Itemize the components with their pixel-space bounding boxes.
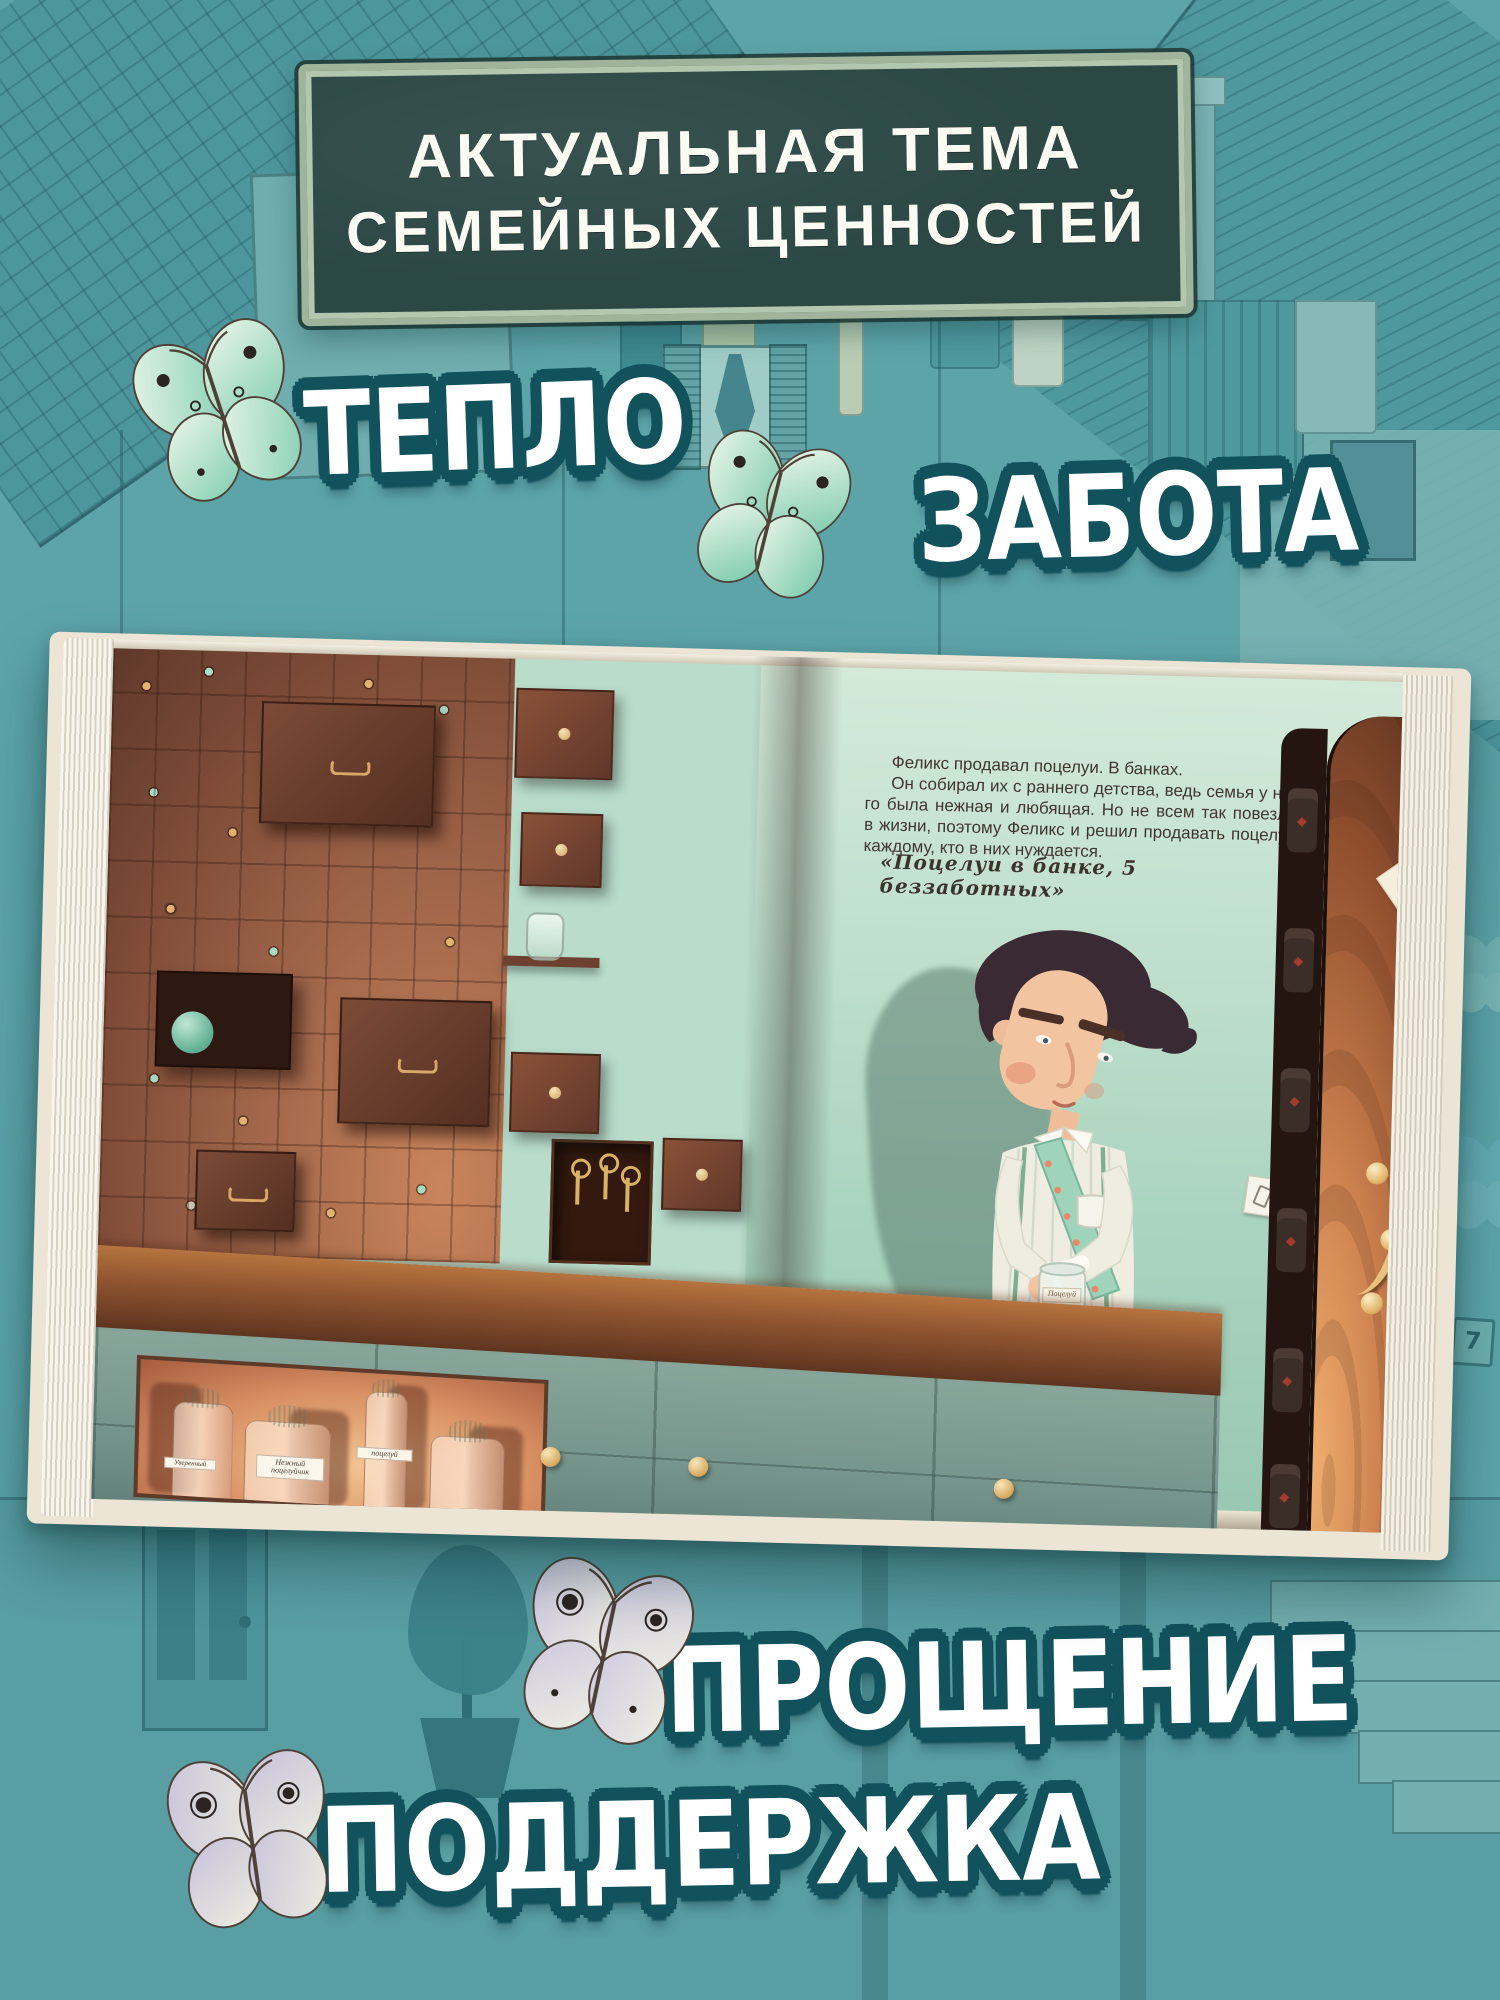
house-number-plate: 7 (1450, 1317, 1495, 1368)
plant-trunk (462, 1640, 472, 1730)
wall-seam (120, 430, 123, 660)
wall-shelf-drawer (514, 688, 614, 781)
chalkboard-surface: АКТУАЛЬНАЯ ТЕМА СЕМЕЙНЫХ ЦЕННОСТЕЙ (305, 59, 1186, 319)
lit-compartment: Уверенный Нежный поцелуйчик поцелуй (133, 1355, 548, 1522)
butterfly-mint-icon (660, 409, 877, 632)
keyword-zabota: ЗАБОТА (916, 453, 1360, 579)
door-knob (239, 1616, 251, 1628)
wall-shelf-drawer (509, 1052, 601, 1134)
protruding-drawer (259, 701, 436, 828)
keyword-podderzhka: ПОДДЕРЖКА (318, 1778, 1101, 1910)
hanging-towel (1295, 300, 1377, 434)
open-book-photo: Феликс продавал поцелуи. В банках. Он со… (27, 632, 1472, 1561)
bottle (171, 1401, 233, 1503)
keyword-teplo: ТЕПЛО (302, 365, 689, 494)
chalkboard-banner: АКТУАЛЬНАЯ ТЕМА СЕМЕЙНЫХ ЦЕННОСТЕЙ (298, 52, 1194, 326)
key-cubby (549, 1139, 654, 1266)
wardrobe-door (1261, 714, 1403, 1533)
glass-jar (525, 912, 564, 961)
bottle (429, 1435, 505, 1519)
promo-page: 7 АКТУАЛЬНАЯ ТЕМА СЕМЕЙНЫХ ЦЕННОСТЕЙ ТЕП… (0, 0, 1500, 2000)
butterfly-lavender-icon (480, 1538, 727, 1777)
protruding-drawer (337, 997, 492, 1127)
open-drawer-with-ball (155, 970, 293, 1070)
banner-line-1: АКТУАЛЬНАЯ ТЕМА (407, 112, 1084, 192)
protruding-drawer (194, 1150, 296, 1233)
book-pages: Феликс продавал поцелуи. В банках. Он со… (91, 639, 1403, 1532)
jar-label: Поцелуй (1044, 1289, 1080, 1299)
wall-shelf-drawer (661, 1138, 743, 1212)
keyword-proshchenie: ПРОЩЕНИЕ (664, 1620, 1355, 1750)
door-pane (209, 1530, 247, 1680)
background-door (142, 1515, 268, 1731)
wall-shelf-drawer (519, 812, 603, 888)
door-pane (157, 1530, 195, 1680)
banner-line-2: СЕМЕЙНЫХ ЦЕННОСТЕЙ (346, 188, 1148, 266)
butterfly-lavender-icon (137, 1735, 367, 1957)
bottle-label: Нежный поцелуйчик (256, 1454, 325, 1481)
